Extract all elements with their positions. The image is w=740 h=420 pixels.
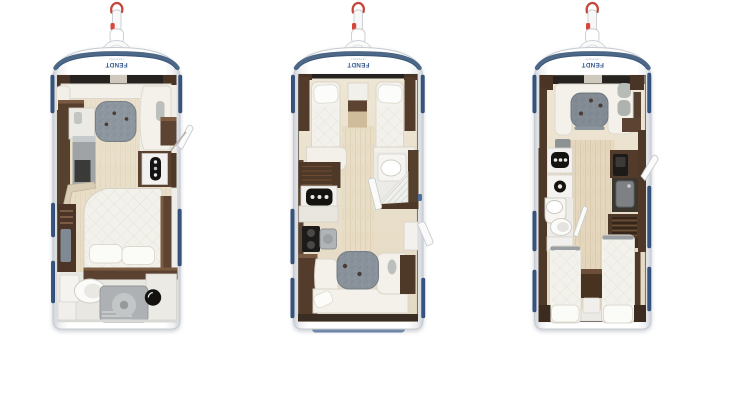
svg-text:CARAVANS: CARAVANS bbox=[585, 58, 601, 61]
svg-text:FENDT: FENDT bbox=[582, 61, 604, 68]
svg-text:CARAVANS: CARAVANS bbox=[109, 58, 125, 61]
svg-text:FENDT: FENDT bbox=[347, 61, 369, 68]
svg-text:CARAVANS: CARAVANS bbox=[350, 58, 366, 61]
svg-text:FENDT: FENDT bbox=[105, 61, 127, 68]
